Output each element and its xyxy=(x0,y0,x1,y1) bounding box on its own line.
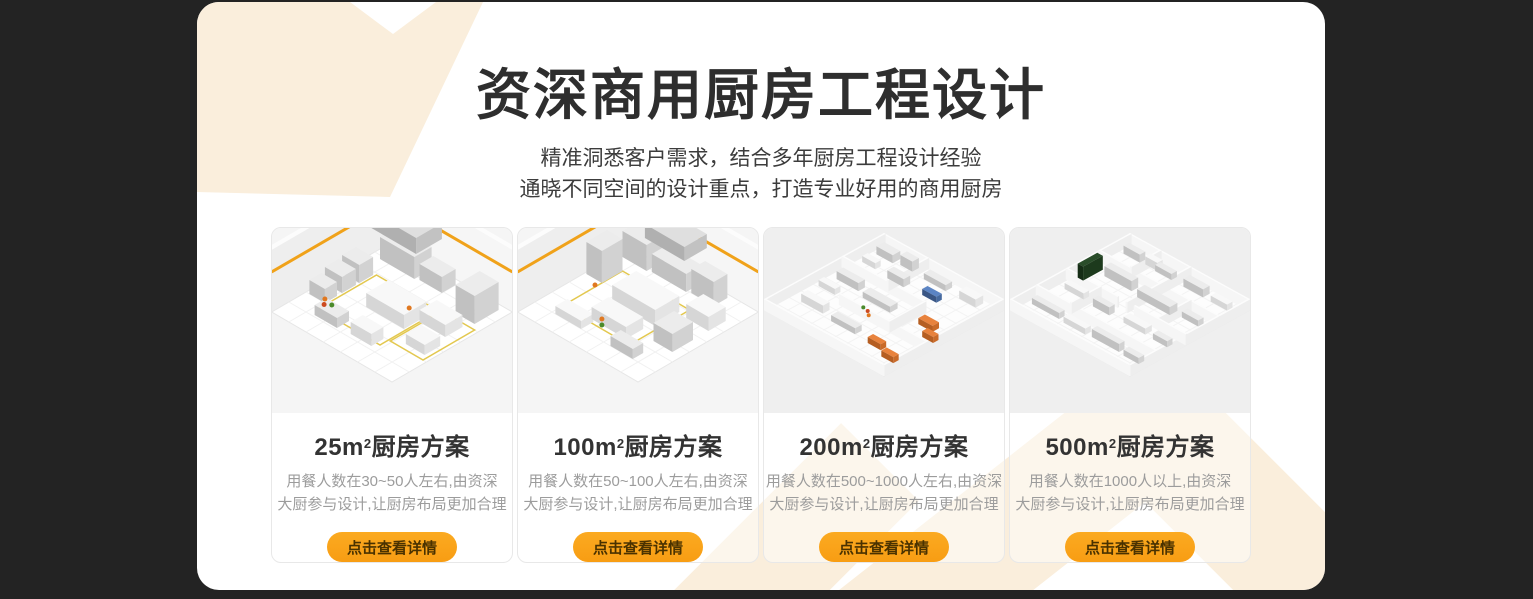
card-area-value: 25m xyxy=(314,434,364,461)
card-description: 用餐人数在50~100人左右,由资深 大厨参与设计,让厨房布局更加合理 xyxy=(518,470,758,516)
plan-card-25sqm[interactable]: 25m2厨房方案 用餐人数在30~50人左右,由资深 大厨参与设计,让厨房布局更… xyxy=(271,227,513,563)
view-details-button[interactable]: 点击查看详情 xyxy=(573,532,703,562)
page-background: 资深商用厨房工程设计 精准洞悉客户需求，结合多年厨房工程设计经验 通晓不同空间的… xyxy=(0,0,1533,599)
plan-cards-row: 25m2厨房方案 用餐人数在30~50人左右,由资深 大厨参与设计,让厨房布局更… xyxy=(271,227,1251,563)
card-title-suffix: 厨房方案 xyxy=(871,434,969,461)
card-area-sup: 2 xyxy=(364,436,372,451)
subtitle-line-2: 通晓不同空间的设计重点，打造专业好用的商用厨房 xyxy=(197,174,1325,205)
kitchen-3d-image-200sqm xyxy=(764,228,1004,413)
card-desc-line-2: 大厨参与设计,让厨房布局更加合理 xyxy=(1010,493,1250,516)
kitchen-3d-image-25sqm xyxy=(272,228,512,413)
view-details-button[interactable]: 点击查看详情 xyxy=(1065,532,1195,562)
card-area-value: 200m xyxy=(799,434,862,461)
card-title-suffix: 厨房方案 xyxy=(625,434,723,461)
card-desc-line-1: 用餐人数在1000人以上,由资深 xyxy=(1010,470,1250,493)
page-title: 资深商用厨房工程设计 xyxy=(197,2,1325,130)
card-description: 用餐人数在1000人以上,由资深 大厨参与设计,让厨房布局更加合理 xyxy=(1010,470,1250,516)
plan-card-100sqm[interactable]: 100m2厨房方案 用餐人数在50~100人左右,由资深 大厨参与设计,让厨房布… xyxy=(517,227,759,563)
card-desc-line-2: 大厨参与设计,让厨房布局更加合理 xyxy=(272,493,512,516)
plan-card-500sqm[interactable]: 500m2厨房方案 用餐人数在1000人以上,由资深 大厨参与设计,让厨房布局更… xyxy=(1009,227,1251,563)
card-title-suffix: 厨房方案 xyxy=(372,434,470,461)
card-area-sup: 2 xyxy=(1109,436,1117,451)
page-subtitle: 精准洞悉客户需求，结合多年厨房工程设计经验 通晓不同空间的设计重点，打造专业好用… xyxy=(197,143,1325,205)
view-details-button[interactable]: 点击查看详情 xyxy=(327,532,457,562)
subtitle-line-1: 精准洞悉客户需求，结合多年厨房工程设计经验 xyxy=(197,143,1325,174)
kitchen-3d-image-500sqm xyxy=(1010,228,1250,413)
kitchen-3d-image-100sqm xyxy=(518,228,758,413)
card-desc-line-1: 用餐人数在500~1000人左右,由资深 xyxy=(764,470,1004,493)
card-desc-line-2: 大厨参与设计,让厨房布局更加合理 xyxy=(764,493,1004,516)
view-details-button[interactable]: 点击查看详情 xyxy=(819,532,949,562)
card-desc-line-1: 用餐人数在30~50人左右,由资深 xyxy=(272,470,512,493)
card-area-value: 500m xyxy=(1045,434,1108,461)
card-title-suffix: 厨房方案 xyxy=(1117,434,1215,461)
card-title: 500m2厨房方案 xyxy=(1010,427,1250,462)
card-title: 200m2厨房方案 xyxy=(764,427,1004,462)
kitchen-design-section: 资深商用厨房工程设计 精准洞悉客户需求，结合多年厨房工程设计经验 通晓不同空间的… xyxy=(197,2,1325,590)
card-desc-line-1: 用餐人数在50~100人左右,由资深 xyxy=(518,470,758,493)
card-desc-line-2: 大厨参与设计,让厨房布局更加合理 xyxy=(518,493,758,516)
card-area-sup: 2 xyxy=(863,436,871,451)
card-description: 用餐人数在500~1000人左右,由资深 大厨参与设计,让厨房布局更加合理 xyxy=(764,470,1004,516)
card-title: 25m2厨房方案 xyxy=(272,427,512,462)
plan-card-200sqm[interactable]: 200m2厨房方案 用餐人数在500~1000人左右,由资深 大厨参与设计,让厨… xyxy=(763,227,1005,563)
card-area-value: 100m xyxy=(553,434,616,461)
card-area-sup: 2 xyxy=(617,436,625,451)
card-description: 用餐人数在30~50人左右,由资深 大厨参与设计,让厨房布局更加合理 xyxy=(272,470,512,516)
card-title: 100m2厨房方案 xyxy=(518,427,758,462)
